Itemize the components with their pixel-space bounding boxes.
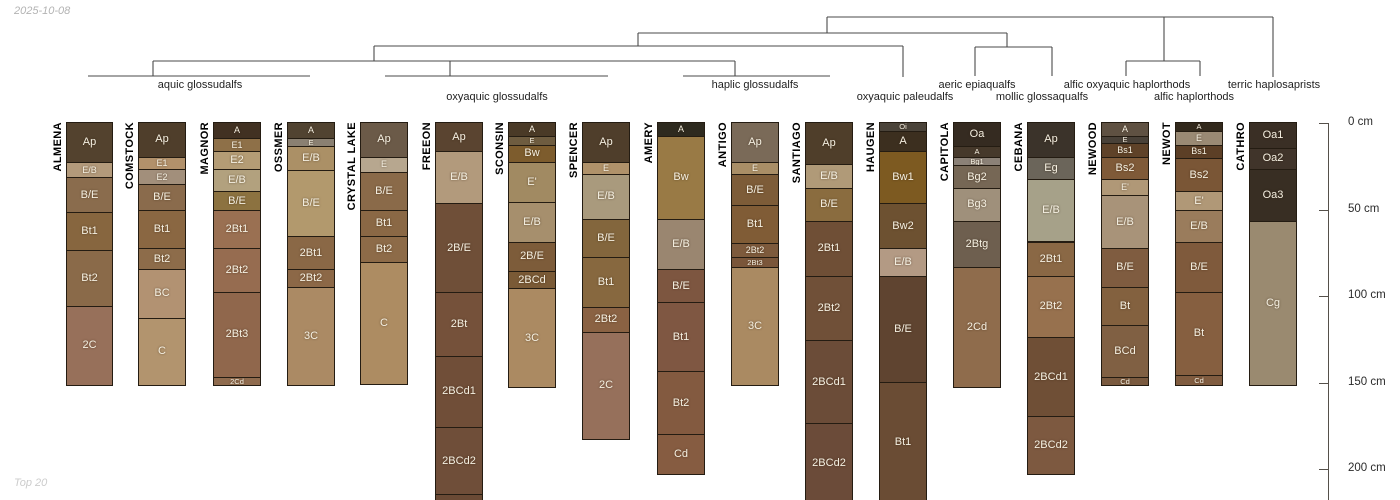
horizon-label: Bt2 [154,254,171,265]
series-label: AMERY [643,122,655,163]
horizon-label: Bt1 [376,218,393,229]
horizon-label: 2BCd1 [812,377,846,388]
horizon: E/B [657,219,705,270]
horizon: B/E [138,184,186,211]
horizon: A [879,131,927,153]
horizon-label: 2BCd1 [1034,372,1068,383]
horizon: B/E [731,174,779,206]
horizon-label: Bw [524,148,539,159]
horizon-label: Bg2 [967,172,987,183]
horizon: Ap [1027,122,1075,158]
horizon: E/B [66,162,113,179]
horizon: B/E [805,188,853,222]
horizon-label: E' [1121,183,1129,192]
horizon: Bw [657,136,705,220]
horizon: B/E [1175,242,1223,293]
horizon: 2Bt1 [213,210,261,249]
horizon: B/E [360,172,408,211]
series-label: COMSTOCK [124,122,136,189]
series-label: ALMENA [52,122,64,171]
horizon: Bt [1101,287,1149,326]
axis-line [1328,123,1329,500]
horizon-label: Ap [155,134,168,145]
horizon: A [213,122,261,139]
horizon-label: E2 [156,173,167,182]
horizon-label: Bw [673,172,688,183]
horizon: Cd [1101,377,1149,387]
horizon: E [360,157,408,174]
group-label: oxyaquic paleudalfs [857,91,954,103]
horizon-label: B/E [672,281,690,292]
horizon: E/B [879,248,927,277]
series-label: NEWOT [1161,122,1173,165]
horizon-label: E [529,137,534,145]
horizon-label: E [381,160,387,169]
horizon-label: 3C [525,333,539,344]
horizon-label: A [1122,125,1128,134]
horizon-label: 2C [82,340,96,351]
horizon: Bw [508,145,556,163]
horizon-label: 2Bt1 [818,243,841,254]
horizon-label: 2BCd2 [812,458,846,469]
horizon-label: A [974,148,979,156]
horizon-label: 2Bt2 [1040,301,1063,312]
horizon-label: Bt1 [81,226,98,237]
horizon-label: Cd [1120,378,1130,386]
horizon-label: B/E [302,198,320,209]
horizon: A [657,122,705,137]
series-label: FREEON [421,122,433,170]
horizon: 2BCd1 [805,340,853,424]
horizon-label: Bs2 [1116,163,1135,174]
footer-annotation: Top 20 [14,477,47,489]
horizon: B/E [879,276,927,383]
horizon: A [508,122,556,137]
series-label: SCONSIN [494,122,506,175]
horizon-label: E [603,164,609,173]
horizon: 2Cd [953,267,1001,388]
horizon: 2BCd2 [805,423,853,500]
horizon-label: BC [154,288,169,299]
horizon-label: Ap [822,138,835,149]
horizon-label: 2Bt3 [747,259,762,267]
horizon: 2B/E [435,203,483,292]
horizon: E/B [213,169,261,193]
series-label: SPENCER [568,122,580,178]
horizon: Bg2 [953,165,1001,189]
horizon-label: B/E [820,199,838,210]
horizon-label: BCd [1114,346,1135,357]
horizon-label: E/B [1042,205,1060,216]
horizon-label: Oa3 [1263,190,1284,201]
horizon-label: E/B [1190,221,1208,232]
horizon-label: C [158,346,166,357]
horizon: 2Btg [953,221,1001,269]
axis-tick-label: 150 cm [1348,376,1386,388]
horizon-label: E [308,139,313,147]
horizon-label: C [380,318,388,329]
horizon-label: Bs1 [1191,147,1207,156]
horizon-label: Ap [1044,134,1057,145]
axis-tick-label: 200 cm [1348,462,1386,474]
horizon-label: A [1196,123,1201,131]
horizon: 2Bt2 [287,269,335,287]
horizon: Bt2 [138,248,186,270]
horizon: E/B [582,174,630,220]
horizon-label: 2BCd [518,275,546,286]
horizon-label: E1 [156,159,167,168]
horizon: B/E [1101,248,1149,287]
group-label: alfic oxyaquic haplorthods [1064,79,1191,91]
horizon-label: Cd [1194,377,1204,385]
series-label: OSSMER [273,122,285,172]
horizon-label: Bw2 [892,221,913,232]
horizon: Bs2 [1175,158,1223,192]
horizon: E/B [287,146,335,171]
horizon-label: B/E [81,190,99,201]
horizon-label: A [529,125,535,134]
horizon: C [138,318,186,387]
horizon-label: Bg3 [967,199,987,210]
horizon: E' [508,162,556,203]
series-label: NEWOOD [1087,122,1099,175]
horizon: Bw2 [879,203,927,249]
horizon: Oa [953,122,1001,147]
horizon: Cd [657,434,705,475]
horizon: E [1175,131,1223,146]
horizon: Bt1 [731,205,779,244]
horizon: E2 [213,151,261,169]
horizon-label: E2 [230,155,243,166]
horizon-label: 2Bt1 [226,224,249,235]
horizon-label: 2Bt3 [226,329,249,340]
horizon: E2 [138,169,186,186]
horizon: 2C [582,332,630,440]
horizon-label: Oi [899,123,907,131]
horizon-label: Bt [1120,301,1130,312]
horizon-label: 2B/E [520,251,544,262]
series-label: CRYSTAL LAKE [346,122,358,210]
horizon: 2Bt3 [213,292,261,378]
horizon-label: E/B [302,153,320,164]
group-label: aeric epiaqualfs [938,79,1015,91]
horizon-label: B/E [375,186,393,197]
horizon-label: Bt1 [747,219,764,230]
horizon-label: A [234,126,240,135]
horizon-label: 2B/E [447,243,471,254]
horizon-label: Ap [599,137,612,148]
horizon-label: Ap [452,132,465,143]
horizon-label: E [1196,134,1202,143]
horizon-label: E' [1194,196,1203,207]
horizon: 2C [66,306,113,387]
horizon: Ap [731,122,779,163]
horizon-label: E [752,164,758,173]
horizon: 2BCd1 [1027,337,1075,418]
horizon-label: E/B [82,166,97,175]
horizon: Ap [805,122,853,165]
horizon: Cg [1249,221,1297,387]
horizon-label: 2C [599,380,613,391]
horizon: Bs1 [1175,145,1223,160]
axis-tick [1319,469,1328,470]
horizon: 2Cd [213,377,261,387]
horizon: Bs1 [1101,143,1149,158]
horizon: E/B [508,202,556,243]
horizon: BCd [1101,325,1149,378]
axis-tick [1319,123,1328,124]
axis-tick-label: 50 cm [1348,203,1379,215]
horizon: 2BCd2 [435,427,483,496]
horizon-label: Bt2 [376,244,393,255]
horizon: Bt1 [66,212,113,251]
horizon-label: Bt1 [154,224,171,235]
horizon-label: Bt2 [81,273,98,284]
horizon: 2Bt2 [582,307,630,332]
horizon: Bt [1175,292,1223,376]
horizon: 2Bt2 [1027,276,1075,338]
horizon: Bt2 [360,236,408,263]
horizon-label: A [899,136,906,147]
horizon-label: 2Bt [451,319,468,330]
horizon-label: B/E [746,185,764,196]
horizon: E/B [805,164,853,189]
horizon-label: E/B [597,191,615,202]
horizon: Bt1 [879,382,927,500]
horizon: Ap [66,122,113,163]
horizon-label: 3C [304,331,318,342]
horizon: Ap [360,122,408,158]
horizon: E/B [1101,195,1149,250]
axis-tick [1319,210,1328,211]
horizon: Bt1 [582,257,630,308]
horizon-label: Bt1 [673,332,690,343]
horizon-label: 2Cd [230,378,244,386]
horizon: E/B [435,151,483,204]
horizon-label: E/B [820,171,838,182]
horizon: 2Bt [435,292,483,357]
horizon: Bt1 [657,302,705,372]
horizon: 2Bt2 [805,276,853,341]
horizon: B/E [287,170,335,237]
horizon-label: Ap [377,134,390,145]
horizon-label: A [308,126,314,135]
horizon-label: 2Bt2 [226,265,249,276]
horizon-label: B/E [894,324,912,335]
horizon: B/E [657,269,705,303]
horizon: Bt2 [657,371,705,434]
horizon-label: E/B [672,239,690,250]
horizon: E' [1175,191,1223,211]
horizon: Bs2 [1101,157,1149,181]
horizon-label: Bt1 [895,437,912,448]
horizon-label: E/B [450,172,468,183]
horizon-label: Cd [674,449,688,460]
horizon-label: Cg [1266,298,1280,309]
horizon-label: B/E [1190,262,1208,273]
horizon: 2Bt1 [805,221,853,277]
series-label: ANTIGO [717,122,729,167]
axis-tick-label: 100 cm [1348,289,1386,301]
horizon-label: 2Btg [966,239,989,250]
horizon-label: E/B [523,217,541,228]
horizon: E' [1101,179,1149,196]
horizon-label: B/E [597,233,615,244]
horizon: B/E [213,191,261,211]
horizon [435,494,483,500]
horizon-label: 2Bt2 [818,303,841,314]
horizon: Bw1 [879,151,927,204]
horizon: Oa1 [1249,122,1297,149]
horizon-label: Bt [1194,328,1204,339]
horizon-label: Bt2 [673,398,690,409]
horizon: E/B [1175,210,1223,242]
horizon-label: 2BCd2 [1034,440,1068,451]
horizon-label: 2Bt2 [746,246,765,255]
horizon-label: E/B [1116,217,1134,228]
horizon-label: 2Bt1 [300,248,323,259]
horizon-label: Bg1 [970,158,983,166]
horizon: 2BCd1 [435,356,483,428]
group-label: mollic glossaqualfs [996,91,1088,103]
horizon: Bt1 [360,210,408,237]
horizon-label: Bw1 [892,172,913,183]
horizon-label: B/E [153,192,171,203]
horizon: 3C [287,287,335,387]
horizon-label: E/B [228,175,246,186]
group-label: terric haplosaprists [1228,79,1320,91]
horizon: Cd [1175,375,1223,386]
horizon-label: Oa1 [1263,130,1284,141]
horizon-label: Ap [748,137,761,148]
horizon-label: 2Bt1 [1040,254,1063,265]
horizon-label: E1 [231,141,242,150]
soil-profile-figure: 2025-10-08 Top 20 aquic glossudalfsoxyaq… [0,0,1400,500]
group-label: oxyaquic glossudalfs [446,91,548,103]
horizon: 2Bt1 [287,236,335,270]
horizon: 2Bt1 [1027,242,1075,278]
series-label: CAPITOLA [939,122,951,181]
horizon-label: 2BCd2 [442,456,476,467]
horizon: 2BCd [508,271,556,289]
axis-tick-label: 0 cm [1348,116,1373,128]
axis-tick [1319,296,1328,297]
horizon: BC [138,269,186,318]
group-label: alfic haplorthods [1154,91,1234,103]
horizon-label: E/B [894,257,912,268]
horizon-label: B/E [228,196,246,207]
series-label: CEBANA [1013,122,1025,171]
horizon: Ap [582,122,630,163]
horizon: B/E [66,177,113,213]
series-label: SANTIAGO [791,122,803,183]
horizon: 2Bt2 [731,243,779,258]
horizon: C [360,262,408,384]
horizon: 3C [731,267,779,386]
horizon-label: Bs2 [1190,170,1209,181]
group-label: aquic glossudalfs [158,79,242,91]
horizon: Bt2 [66,250,113,306]
horizon-label: 2Bt2 [300,273,323,284]
horizon: B/E [582,219,630,258]
horizon-label: B/E [1116,262,1134,273]
axis-tick [1319,383,1328,384]
horizon-label: 3C [748,321,762,332]
horizon-label: 2Bt2 [595,314,618,325]
horizon-label: Bs1 [1117,146,1133,155]
horizon-label: Bt1 [598,277,615,288]
horizon: Eg [1027,157,1075,181]
horizon: E/B [1027,179,1075,242]
horizon-label: 2Cd [967,322,987,333]
horizon: Oa3 [1249,169,1297,222]
horizon: 2BCd2 [1027,416,1075,474]
horizon-label: A [678,125,684,134]
horizon: A [1101,122,1149,137]
horizon: Bg3 [953,188,1001,222]
horizon: 2B/E [508,242,556,272]
horizon: Oa2 [1249,148,1297,170]
horizon: A [287,122,335,139]
horizon: E1 [213,138,261,153]
horizon-label: E' [527,177,536,188]
horizon: 3C [508,288,556,388]
horizon: Bt1 [138,210,186,249]
series-label: CATHRO [1235,122,1247,171]
series-label: MAGNOR [199,122,211,175]
horizon: 2Bt2 [213,248,261,292]
horizon-label: Oa [970,129,985,140]
horizon-label: Eg [1044,163,1057,174]
series-label: HAUGEN [865,122,877,172]
horizon: Ap [138,122,186,158]
horizon-label: Ap [83,137,96,148]
horizon: Ap [435,122,483,152]
horizon-label: 2BCd1 [442,386,476,397]
horizon-label: Oa2 [1263,153,1284,164]
group-label: haplic glossudalfs [712,79,799,91]
